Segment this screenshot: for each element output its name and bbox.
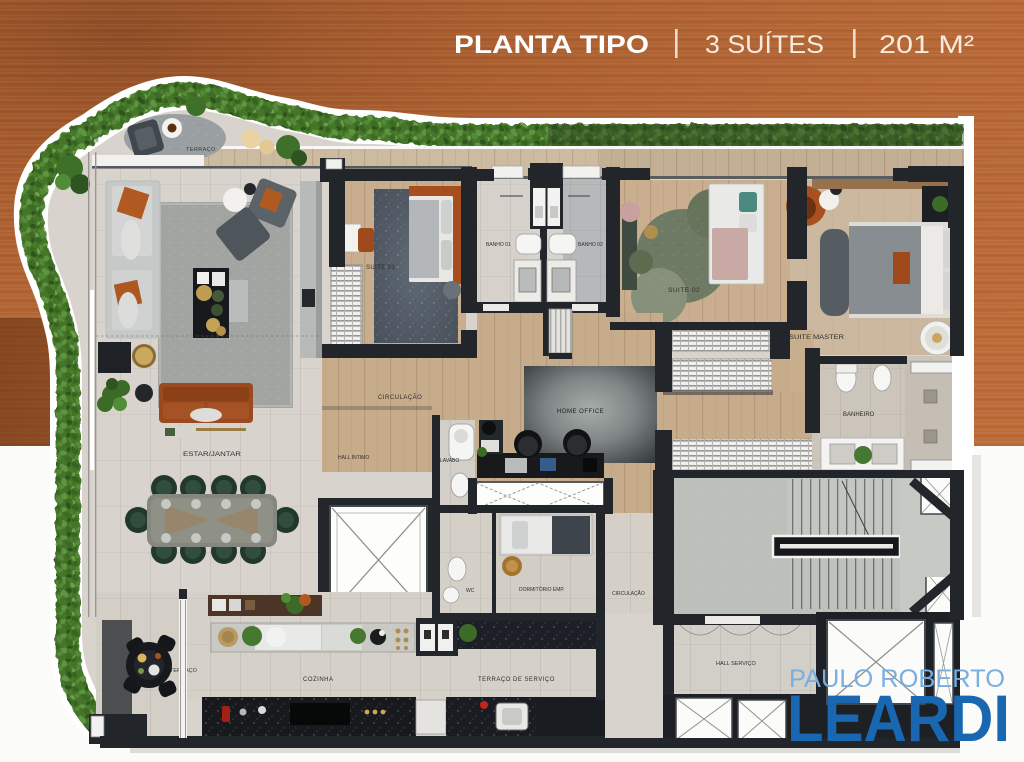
svg-text:BANHO 02: BANHO 02 bbox=[578, 242, 603, 248]
svg-text:TERRAÇO: TERRAÇO bbox=[186, 147, 216, 153]
svg-text:3 SUÍTES: 3 SUÍTES bbox=[705, 30, 824, 59]
svg-text:HOME OFFICE: HOME OFFICE bbox=[557, 409, 604, 415]
svg-text:COZINHA: COZINHA bbox=[303, 677, 334, 683]
svg-text:HALL ÍNTIMO: HALL ÍNTIMO bbox=[338, 454, 369, 461]
svg-text:CIRCULAÇÃO: CIRCULAÇÃO bbox=[378, 394, 422, 401]
svg-text:201 M²: 201 M² bbox=[879, 31, 974, 59]
svg-text:SUITE 01: SUITE 01 bbox=[366, 265, 395, 271]
svg-text:SUITE MASTER: SUITE MASTER bbox=[789, 335, 845, 341]
svg-text:WC: WC bbox=[466, 588, 475, 594]
svg-text:BANHEIRO: BANHEIRO bbox=[843, 412, 875, 418]
svg-text:DORMITÓRIO EMP.: DORMITÓRIO EMP. bbox=[519, 586, 564, 593]
svg-text:TERRAÇO DE SERVIÇO: TERRAÇO DE SERVIÇO bbox=[478, 677, 555, 683]
svg-text:HALL SERVIÇO: HALL SERVIÇO bbox=[716, 661, 756, 667]
svg-text:LAVABO: LAVABO bbox=[440, 458, 459, 464]
svg-text:PLANTA TIPO: PLANTA TIPO bbox=[454, 31, 649, 59]
svg-text:SUITE 02: SUITE 02 bbox=[668, 287, 700, 294]
svg-text:CIRCULAÇÃO: CIRCULAÇÃO bbox=[612, 590, 645, 597]
svg-text:LEARDI: LEARDI bbox=[787, 681, 1010, 755]
svg-text:ESTAR/JANTAR: ESTAR/JANTAR bbox=[183, 452, 242, 458]
svg-text:BANHO 01: BANHO 01 bbox=[486, 242, 511, 248]
